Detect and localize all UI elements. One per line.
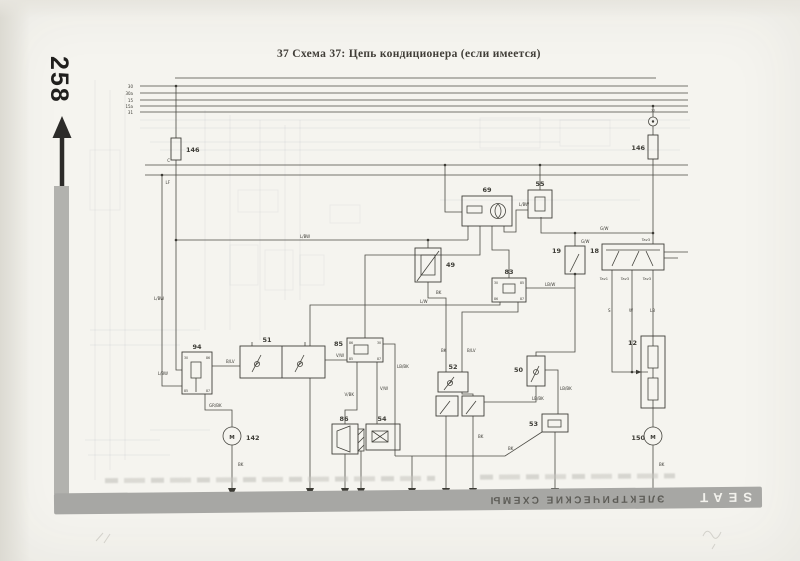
switch-53-box [542, 414, 568, 432]
switch-50-box [527, 356, 545, 386]
terminal-label: 85 [184, 389, 188, 393]
terminal-label: 86 [349, 341, 353, 345]
wire-label: L/BW [519, 202, 529, 207]
bus-label: 30 [128, 84, 134, 89]
wire-label: LB/BK [560, 386, 572, 391]
wire-label: LB/BK [397, 364, 409, 369]
fan-icon [491, 204, 506, 219]
terminal-label: 30 [377, 341, 381, 345]
bus-label: 31 [128, 110, 134, 115]
component-number: 53 [529, 420, 538, 428]
component-number: 86 [339, 415, 349, 423]
switch-19-box [565, 246, 585, 274]
component-number: 51 [262, 336, 272, 344]
brand-logo-text: SEAT [694, 490, 752, 506]
wire-label: BK [441, 348, 447, 353]
component-number: 50 [514, 366, 524, 374]
component-number: 85 [334, 340, 344, 348]
wire-label: BK [478, 434, 484, 439]
motor-letter: M [650, 435, 655, 441]
pencil-marks [96, 531, 721, 549]
component-number: 150 [631, 434, 645, 442]
wire-label: S [608, 308, 611, 313]
wire-label: LB/BK [532, 396, 544, 401]
component-number: 12 [628, 339, 637, 347]
wire-label: BK [659, 462, 665, 467]
wire-label: B/LV [226, 359, 235, 364]
component-boxes [171, 135, 665, 454]
switch-51-box [240, 346, 325, 378]
component-symbols [191, 117, 662, 452]
terminal-label: 86 [494, 297, 498, 301]
wire-label: G/W [600, 226, 608, 231]
switch-52-box [438, 372, 468, 392]
terminal-label: 85 [349, 357, 353, 361]
component-number: 94 [192, 343, 202, 351]
terminal-label: 87 [206, 389, 210, 393]
wire-label: L/BW [158, 371, 168, 376]
wire-label: GR/BK [209, 403, 222, 408]
wire-label: BK [508, 446, 514, 451]
wire-label: V/W [380, 386, 388, 391]
terminal-label: 30 [184, 356, 188, 360]
wire-label: B/LV [467, 348, 476, 353]
switch-52a-box [436, 396, 458, 416]
switch-18-box [602, 244, 664, 270]
wire-label: L/BW [154, 296, 164, 301]
wire-label: G/W [581, 239, 589, 244]
wire-label: LB [650, 308, 655, 313]
component-number: 142 [246, 434, 260, 442]
bus-label: 15 [128, 98, 134, 103]
motor-letter: M [229, 435, 234, 441]
terminal-label: 86 [206, 356, 210, 360]
wire-label: L/W [420, 299, 428, 304]
component-number: 55 [535, 180, 545, 188]
connector-label: Tav3 [641, 238, 650, 242]
component-number: 83 [504, 268, 513, 276]
component-55-box [528, 190, 552, 218]
component-number: 18 [590, 247, 600, 255]
connector-label: Tav3 [620, 277, 629, 281]
bus-label: 15a [125, 104, 133, 109]
bus-label: 30a [125, 91, 133, 96]
terminal-label: 77 [651, 109, 655, 113]
wire-label: V/BK [345, 392, 355, 397]
component-69-box [462, 196, 512, 226]
terminal-label: 30 [494, 281, 498, 285]
footer-rotated-text: SEAT ЭЛЕКТРИЧЕСКИЕ СХЕМЫ [432, 487, 758, 511]
wire-label: LB/W [545, 282, 555, 287]
component-number: 19 [552, 247, 562, 255]
wire-label: V/W [336, 353, 344, 358]
terminal-label: 87 [377, 357, 381, 361]
bus-label: LF [165, 180, 170, 185]
wire-label: BK [436, 290, 442, 295]
component-number: 49 [446, 261, 456, 269]
wire-label: W [629, 308, 633, 313]
wire-label: BK [238, 462, 244, 467]
wire-label: L/BW [300, 234, 310, 239]
terminal-label: 87 [520, 297, 524, 301]
component-number: 69 [482, 186, 492, 194]
clutch-86-box [332, 424, 358, 454]
fuse-146-right-box [648, 135, 658, 159]
component-number: 146 [631, 144, 645, 152]
component-number: 146 [186, 146, 200, 154]
connector-label: Tav3 [642, 277, 651, 281]
scanned-manual-page: 258 37 Схема 37: Цепь кондиционера (если… [0, 0, 800, 561]
connector-label: Tav1 [599, 277, 608, 281]
fuse-146-left-box [171, 138, 181, 160]
component-number: 54 [377, 415, 387, 423]
section-title: ЭЛЕКТРИЧЕСКИЕ СХЕМЫ [488, 493, 664, 506]
switch-52b-box [462, 396, 484, 416]
terminal-label: 85 [520, 281, 524, 285]
component-number: 52 [448, 363, 457, 371]
bus-lines [140, 78, 688, 175]
bus-label: C [167, 158, 170, 163]
